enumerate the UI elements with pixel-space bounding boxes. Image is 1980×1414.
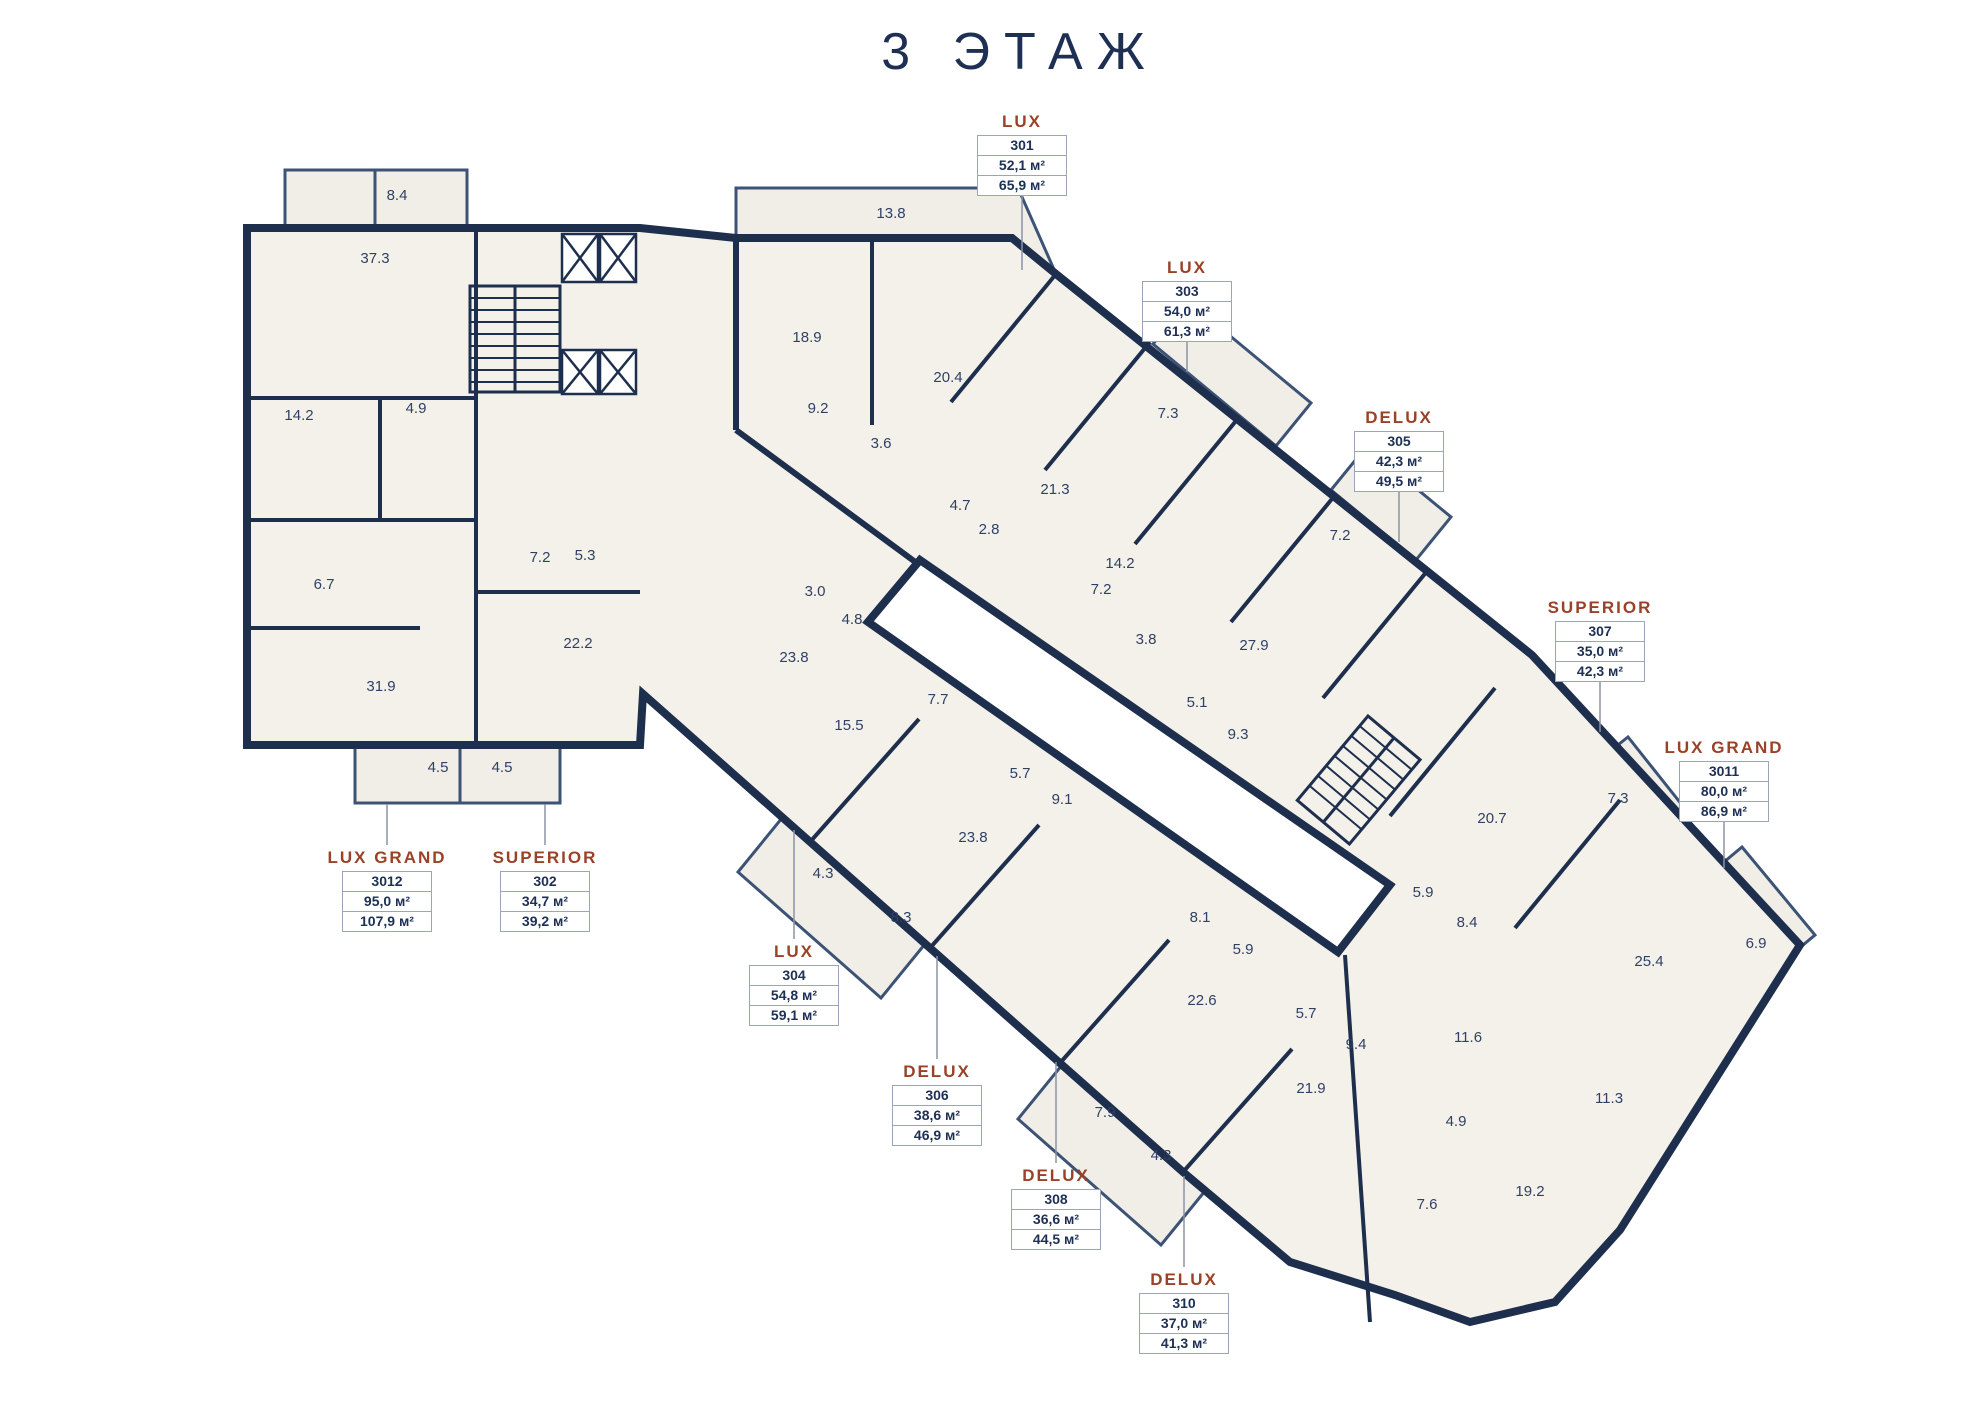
apartment-info-table: 30454,8 м²59,1 м² (749, 965, 839, 1026)
room-area-label: 8.3 (891, 909, 912, 926)
total-area: 61,3 м² (1143, 321, 1231, 341)
room-area-label: 7.6 (1417, 1196, 1438, 1213)
apartment-card-3012[interactable]: LUX GRAND301295,0 м²107,9 м² (312, 848, 462, 932)
apartment-info-table: 301295,0 м²107,9 м² (342, 871, 432, 932)
room-area-label: 22.6 (1187, 992, 1216, 1009)
apartment-info-table: 30234,7 м²39,2 м² (500, 871, 590, 932)
room-area-label: 5.7 (1296, 1005, 1317, 1022)
unit-number: 304 (750, 966, 838, 985)
room-area-label: 7.9 (1095, 1104, 1116, 1121)
apartment-type-label: SUPERIOR (1525, 598, 1675, 618)
apartment-info-table: 30542,3 м²49,5 м² (1354, 431, 1444, 492)
room-area-label: 20.4 (933, 369, 962, 386)
room-area-label: 7.7 (928, 691, 949, 708)
room-area-label: 5.1 (1187, 694, 1208, 711)
room-area-label: 5.9 (1413, 884, 1434, 901)
unit-number: 301 (978, 136, 1066, 155)
apartment-card-302[interactable]: SUPERIOR30234,7 м²39,2 м² (470, 848, 620, 932)
room-area-label: 20.7 (1477, 810, 1506, 827)
room-area-label: 7.3 (1608, 790, 1629, 807)
apartment-card-308[interactable]: DELUX30836,6 м²44,5 м² (981, 1166, 1131, 1250)
total-area: 44,5 м² (1012, 1229, 1100, 1249)
apartment-type-label: DELUX (1109, 1270, 1259, 1290)
room-area-label: 4.7 (950, 497, 971, 514)
room-area-label: 7.2 (530, 549, 551, 566)
balcony-bottom-left (355, 745, 560, 803)
room-area-label: 7.2 (1091, 581, 1112, 598)
unit-number: 302 (501, 872, 589, 891)
room-area-label: 5.7 (1010, 765, 1031, 782)
apartment-type-label: DELUX (981, 1166, 1131, 1186)
apartment-type-label: DELUX (862, 1062, 1012, 1082)
apartment-card-310[interactable]: DELUX31037,0 м²41,3 м² (1109, 1270, 1259, 1354)
room-area-label: 8.4 (387, 187, 408, 204)
living-area: 54,0 м² (1143, 301, 1231, 321)
room-area-label: 9.4 (1346, 1036, 1367, 1053)
unit-number: 3011 (1680, 762, 1768, 781)
total-area: 107,9 м² (343, 911, 431, 931)
living-area: 52,1 м² (978, 155, 1066, 175)
living-area: 36,6 м² (1012, 1209, 1100, 1229)
room-area-label: 3.0 (805, 583, 826, 600)
apartment-type-label: SUPERIOR (470, 848, 620, 868)
room-area-label: 5.9 (1233, 941, 1254, 958)
room-area-label: 4.9 (406, 400, 427, 417)
apartment-info-table: 30638,6 м²46,9 м² (892, 1085, 982, 1146)
room-area-label: 22.2 (563, 635, 592, 652)
unit-number: 3012 (343, 872, 431, 891)
room-area-label: 5.3 (575, 547, 596, 564)
apartment-type-label: LUX (947, 112, 1097, 132)
room-area-label: 21.3 (1040, 481, 1069, 498)
floorplan-page: 3 ЭТАЖ (0, 0, 1980, 1414)
room-area-label: 2.8 (979, 521, 1000, 538)
apartment-info-table: 30152,1 м²65,9 м² (977, 135, 1067, 196)
room-area-label: 4.3 (1151, 1147, 1172, 1164)
room-area-label: 6.7 (314, 576, 335, 593)
apartment-card-3011[interactable]: LUX GRAND301180,0 м²86,9 м² (1649, 738, 1799, 822)
living-area: 80,0 м² (1680, 781, 1768, 801)
room-area-label: 4.8 (842, 611, 863, 628)
room-area-label: 7.3 (1158, 405, 1179, 422)
total-area: 49,5 м² (1355, 471, 1443, 491)
room-area-label: 14.2 (284, 407, 313, 424)
apartment-info-table: 30836,6 м²44,5 м² (1011, 1189, 1101, 1250)
unit-number: 310 (1140, 1294, 1228, 1313)
room-area-label: 4.3 (813, 865, 834, 882)
room-area-label: 7.2 (1330, 527, 1351, 544)
room-area-label: 9.3 (1228, 726, 1249, 743)
room-area-label: 6.9 (1746, 935, 1767, 952)
apartment-info-table: 30354,0 м²61,3 м² (1142, 281, 1232, 342)
total-area: 42,3 м² (1556, 661, 1644, 681)
room-area-label: 37.3 (360, 250, 389, 267)
total-area: 59,1 м² (750, 1005, 838, 1025)
living-area: 34,7 м² (501, 891, 589, 911)
living-area: 37,0 м² (1140, 1313, 1228, 1333)
room-area-label: 31.9 (366, 678, 395, 695)
room-area-label: 18.9 (792, 329, 821, 346)
room-area-label: 23.8 (779, 649, 808, 666)
living-area: 42,3 м² (1355, 451, 1443, 471)
room-area-label: 21.9 (1296, 1080, 1325, 1097)
room-area-label: 11.6 (1454, 1029, 1482, 1046)
unit-number: 303 (1143, 282, 1231, 301)
total-area: 86,9 м² (1680, 801, 1768, 821)
apartment-card-307[interactable]: SUPERIOR30735,0 м²42,3 м² (1525, 598, 1675, 682)
room-area-label: 15.5 (834, 717, 863, 734)
apartment-info-table: 301180,0 м²86,9 м² (1679, 761, 1769, 822)
living-area: 35,0 м² (1556, 641, 1644, 661)
unit-number: 306 (893, 1086, 981, 1105)
room-area-label: 13.8 (876, 205, 905, 222)
total-area: 65,9 м² (978, 175, 1066, 195)
room-area-label: 19.2 (1515, 1183, 1544, 1200)
apartment-card-303[interactable]: LUX30354,0 м²61,3 м² (1112, 258, 1262, 342)
apartment-card-306[interactable]: DELUX30638,6 м²46,9 м² (862, 1062, 1012, 1146)
room-area-label: 4.5 (428, 759, 449, 776)
room-area-label: 14.2 (1105, 555, 1134, 572)
room-area-label: 8.1 (1190, 909, 1211, 926)
room-area-label: 11.3 (1595, 1090, 1623, 1107)
room-area-label: 9.1 (1052, 791, 1073, 808)
living-area: 38,6 м² (893, 1105, 981, 1125)
apartment-card-304[interactable]: LUX30454,8 м²59,1 м² (719, 942, 869, 1026)
room-area-label: 3.6 (871, 435, 892, 452)
total-area: 41,3 м² (1140, 1333, 1228, 1353)
unit-number: 307 (1556, 622, 1644, 641)
room-area-label: 23.8 (958, 829, 987, 846)
total-area: 39,2 м² (501, 911, 589, 931)
room-area-label: 27.9 (1239, 637, 1268, 654)
apartment-type-label: LUX GRAND (312, 848, 462, 868)
apartment-type-label: LUX (719, 942, 869, 962)
unit-number: 308 (1012, 1190, 1100, 1209)
living-area: 54,8 м² (750, 985, 838, 1005)
room-area-label: 4.5 (492, 759, 513, 776)
apartment-type-label: DELUX (1324, 408, 1474, 428)
apartment-card-301[interactable]: LUX30152,1 м²65,9 м² (947, 112, 1097, 196)
apartment-type-label: LUX (1112, 258, 1262, 278)
apartment-info-table: 30735,0 м²42,3 м² (1555, 621, 1645, 682)
apartment-type-label: LUX GRAND (1649, 738, 1799, 758)
total-area: 46,9 м² (893, 1125, 981, 1145)
room-area-label: 4.9 (1446, 1113, 1467, 1130)
room-area-label: 3.8 (1136, 631, 1157, 648)
unit-number: 305 (1355, 432, 1443, 451)
living-area: 95,0 м² (343, 891, 431, 911)
room-area-label: 25.4 (1634, 953, 1663, 970)
room-area-label: 8.4 (1457, 914, 1478, 931)
apartment-info-table: 31037,0 м²41,3 м² (1139, 1293, 1229, 1354)
apartment-card-305[interactable]: DELUX30542,3 м²49,5 м² (1324, 408, 1474, 492)
room-area-label: 9.2 (808, 400, 829, 417)
